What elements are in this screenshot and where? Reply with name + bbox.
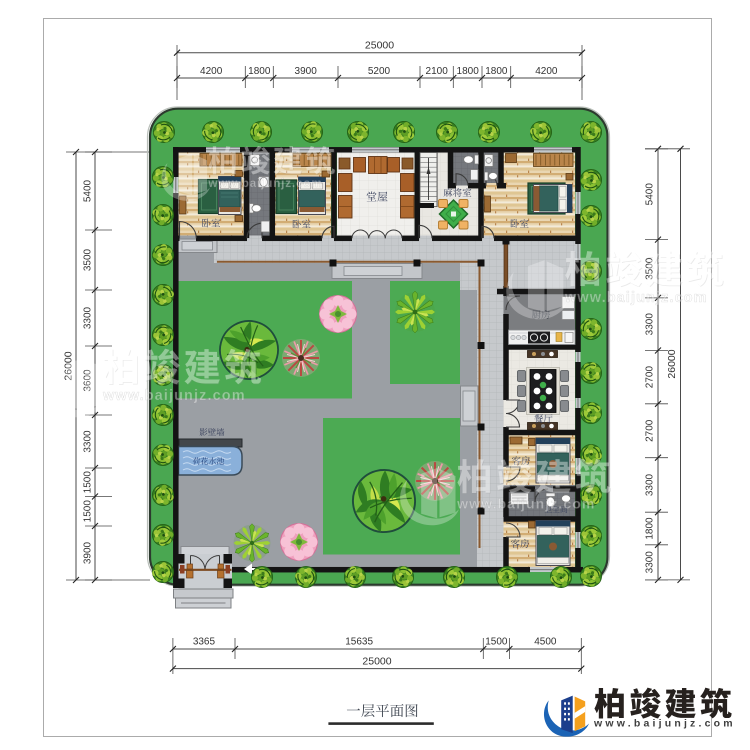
svg-text:15635: 15635: [345, 637, 373, 648]
svg-text:www.baijunjz.com: www.baijunjz.com: [564, 290, 708, 306]
svg-text:4200: 4200: [535, 66, 558, 77]
svg-text:2700: 2700: [645, 419, 656, 442]
svg-text:www.baijunjz.com: www.baijunjz.com: [456, 496, 595, 512]
svg-text:3300: 3300: [645, 551, 656, 574]
svg-text:3300: 3300: [645, 313, 656, 336]
svg-text:25000: 25000: [362, 656, 391, 668]
svg-text:2100: 2100: [426, 66, 449, 77]
svg-text:3300: 3300: [83, 430, 94, 453]
svg-text:1500: 1500: [485, 637, 508, 648]
svg-text:5400: 5400: [83, 179, 94, 202]
svg-text:3300: 3300: [83, 306, 94, 329]
svg-text:25000: 25000: [365, 40, 394, 52]
svg-text:1500: 1500: [83, 500, 94, 523]
svg-text:2700: 2700: [645, 366, 656, 389]
svg-text:3500: 3500: [83, 248, 94, 271]
svg-text:4500: 4500: [534, 637, 557, 648]
svg-text:3300: 3300: [645, 473, 656, 496]
svg-text:1500: 1500: [83, 471, 94, 494]
svg-text:3365: 3365: [193, 637, 216, 648]
svg-text:1800: 1800: [485, 66, 508, 77]
svg-text:www.baijunjz.com: www.baijunjz.com: [207, 177, 322, 190]
svg-text:1800: 1800: [645, 517, 656, 540]
svg-text:26000: 26000: [666, 349, 678, 378]
svg-text:www.baijunjz.com: www.baijunjz.com: [102, 388, 246, 404]
svg-text:3900: 3900: [295, 66, 318, 77]
svg-text:www.baijunjz.com: www.baijunjz.com: [593, 718, 736, 730]
svg-text:5400: 5400: [645, 183, 656, 206]
svg-text:4200: 4200: [200, 66, 223, 77]
svg-text:1800: 1800: [457, 66, 480, 77]
svg-text:3900: 3900: [83, 541, 94, 564]
svg-text:5200: 5200: [368, 66, 391, 77]
svg-text:1800: 1800: [248, 66, 271, 77]
